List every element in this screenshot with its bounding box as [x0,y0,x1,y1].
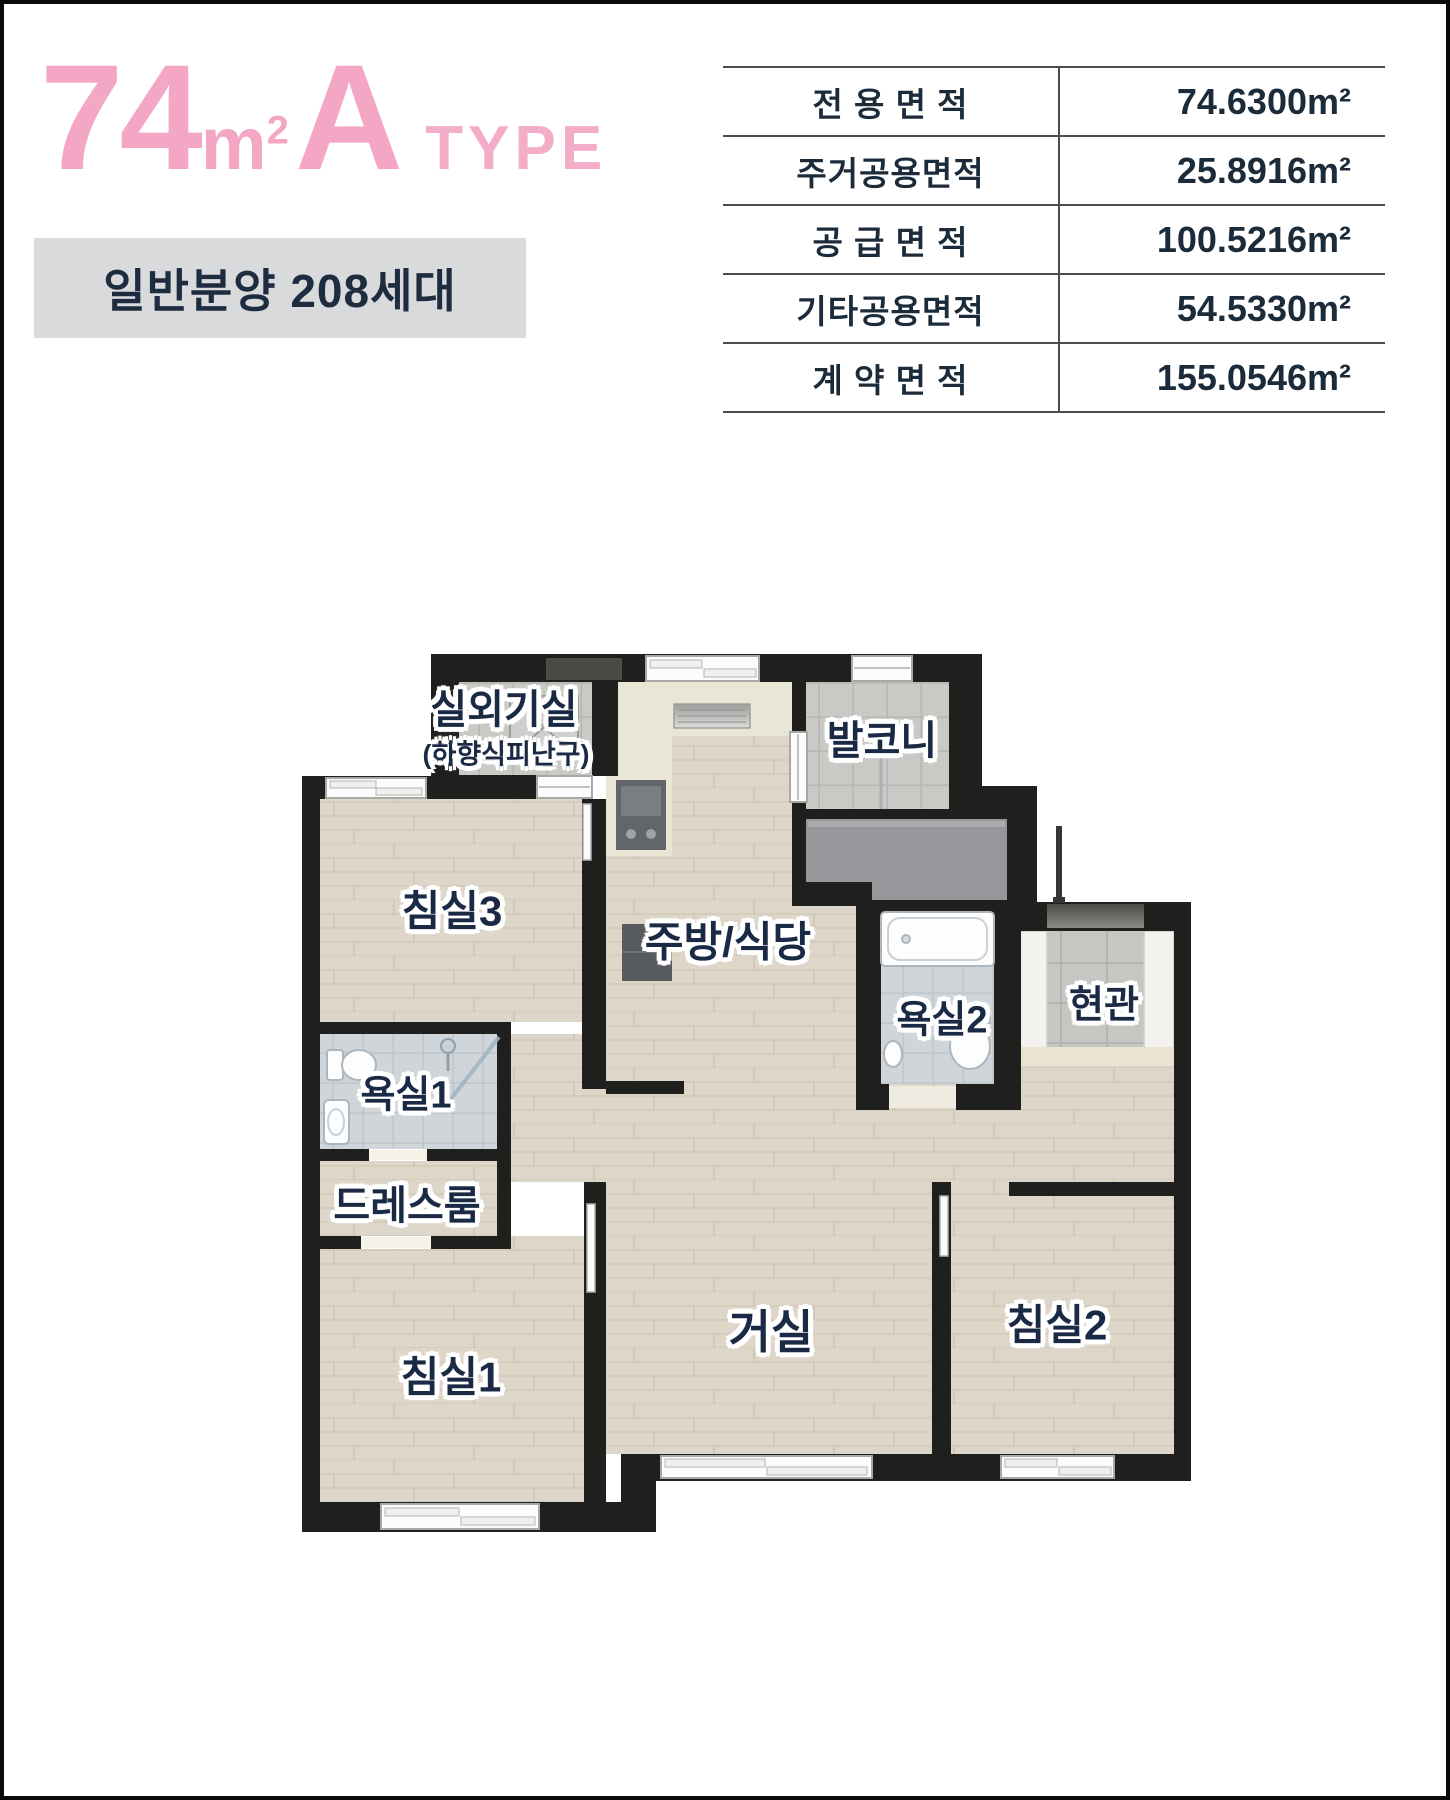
room-label-entrance: 현관 [1069,974,1139,1029]
bed3-window [326,778,426,798]
room-label-kitchen: 주방/식당 [645,909,811,970]
room-label-outdoor-unit-sub: (하향식피난구) [422,733,589,772]
bath1-sink-icon [324,1100,349,1144]
escape-screen [1056,826,1062,902]
floor-plan-svg [4,4,1450,1800]
dressroom-door-gap [361,1237,431,1248]
outdoor-unit-window [537,776,592,798]
room-label-outdoor-unit: 실외기실 [430,677,577,735]
room-label-bath2: 욕실2 [896,989,987,1044]
room-label-bed3: 침실3 [402,878,503,939]
room-label-bed1: 침실1 [401,1344,502,1405]
room-label-living: 거실 [729,1296,814,1362]
bed1-door-leaf [587,1204,595,1292]
bed1-window [381,1504,539,1529]
bath2-sink-icon [884,1041,902,1067]
kitchen-window [646,656,759,681]
bath2-door-gap [889,1086,956,1108]
room-label-bath1: 욕실1 [360,1064,451,1119]
living-window [661,1456,872,1478]
bath1-door-gap [369,1150,427,1160]
bathtub-icon [881,912,994,966]
room-label-bed2: 침실2 [1007,1292,1108,1353]
bed2-window [1001,1456,1114,1478]
bed3-door-leaf [583,804,591,860]
room-label-dressroom: 드레스룸 [333,1173,480,1231]
page: 74m2ATYPE 일반분양 208세대 전 용 면 적74.6300m²주거공… [0,0,1450,1800]
front-door [1047,904,1144,928]
bed2-door-leaf [940,1196,948,1256]
balcony-door [790,732,807,802]
balcony-window [852,656,912,681]
room-label-balcony: 발코니 [827,708,937,766]
